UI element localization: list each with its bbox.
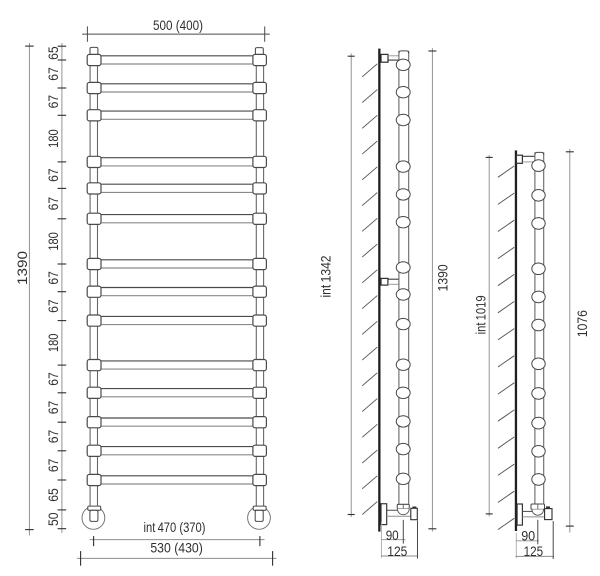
svg-text:90: 90	[386, 527, 399, 543]
svg-text:50: 50	[45, 512, 61, 526]
svg-text:180: 180	[45, 232, 61, 251]
svg-text:int 1019: int 1019	[473, 295, 489, 334]
svg-text:67: 67	[45, 95, 61, 109]
svg-text:180: 180	[45, 333, 61, 352]
svg-text:67: 67	[45, 271, 61, 285]
svg-text:67: 67	[45, 372, 61, 386]
svg-text:int 1342: int 1342	[318, 255, 334, 297]
svg-text:1076: 1076	[574, 310, 590, 337]
svg-text:67: 67	[45, 168, 61, 182]
svg-text:67: 67	[45, 67, 61, 81]
svg-text:65: 65	[45, 46, 61, 60]
svg-text:67: 67	[45, 401, 61, 415]
svg-text:67: 67	[45, 430, 61, 444]
svg-text:125: 125	[387, 543, 407, 559]
svg-text:67: 67	[45, 299, 61, 313]
svg-text:1390: 1390	[435, 264, 451, 291]
svg-text:int 470 (370): int 470 (370)	[144, 519, 206, 535]
svg-text:530 (430): 530 (430)	[150, 539, 203, 555]
svg-text:65: 65	[45, 488, 61, 502]
svg-text:67: 67	[45, 197, 61, 211]
svg-text:125: 125	[524, 543, 544, 559]
svg-text:1390: 1390	[14, 251, 30, 285]
svg-text:500 (400): 500 (400)	[153, 17, 203, 33]
svg-text:180: 180	[45, 129, 61, 148]
svg-text:90: 90	[521, 527, 535, 543]
svg-text:67: 67	[45, 458, 61, 472]
